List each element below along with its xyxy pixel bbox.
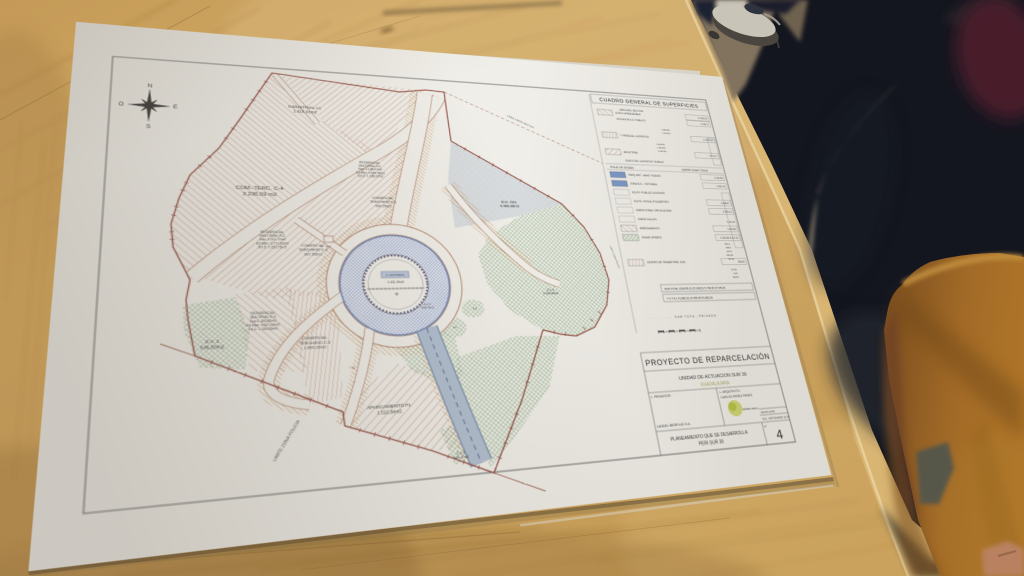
svg-text:3,25: 3,25 — [733, 272, 738, 275]
svg-text:1.214,51: 1.214,51 — [662, 132, 671, 135]
svg-text:904,1: 904,1 — [724, 242, 730, 245]
svg-text:CENTRO DE TRANSFORM. SUB: CENTRO DE TRANSFORM. SUB — [647, 261, 686, 264]
svg-text:1.819,91: 1.819,91 — [708, 155, 717, 158]
svg-text:4.181,86 6.117,00: 4.181,86 6.117,00 — [720, 236, 739, 239]
svg-text:E: E — [173, 105, 178, 110]
svg-text:INDUSTRIAL: INDUSTRIAL — [623, 151, 638, 155]
svg-text:C. ROTONDA: C. ROTONDA — [386, 273, 405, 277]
svg-text:Z.V.: Z.V. — [453, 326, 458, 329]
svg-text:96,19: 96,19 — [728, 257, 734, 260]
svg-text:247,0: 247,0 — [726, 250, 732, 253]
svg-text:N: N — [147, 84, 152, 89]
svg-text:5.748,35: 5.748,35 — [726, 220, 735, 223]
svg-text:17.832,02: 17.832,02 — [703, 139, 714, 142]
svg-text:1.522,84: 1.522,84 — [727, 228, 737, 231]
svg-text:1.431,19: 1.431,19 — [716, 185, 726, 188]
svg-text:S: S — [146, 125, 151, 130]
svg-text:APARCAMIENTO: APARCAMIENTO — [639, 227, 660, 230]
svg-text:188,3: 188,3 — [725, 246, 731, 249]
svg-text:88,35: 88,35 — [733, 276, 739, 279]
svg-text:150,45: 150,45 — [726, 254, 734, 257]
svg-text:COMERCIALTERCIARIO C-31.800,30: COMERCIALTERCIARIO C-31.800,30m2 — [299, 336, 331, 351]
svg-text:1.244,54: 1.244,54 — [658, 150, 667, 153]
svg-text:INDUSTRIAL I-11.819,91m2: INDUSTRIAL I-11.819,91m2 — [288, 104, 322, 114]
svg-text:Z.V.: Z.V. — [473, 307, 478, 310]
svg-text:1.431,19m2: 1.431,19m2 — [387, 280, 404, 284]
svg-text:12,40: 12,40 — [731, 268, 737, 271]
svg-text:1.488,37: 1.488,37 — [720, 202, 730, 205]
svg-text:4.181,86: 4.181,86 — [714, 177, 723, 180]
svg-text:ZONAS VERDES: ZONAS VERDES — [641, 236, 662, 239]
svg-text:VIARIO CALLES: VIARIO CALLES — [638, 218, 658, 221]
svg-text:1.246,71: 1.246,71 — [700, 123, 709, 126]
svg-text:VIARIO ZONAL CIRCULACION: VIARIO ZONAL CIRCULACION — [636, 209, 672, 213]
svg-text:150,00: 150,00 — [737, 260, 745, 263]
svg-text:4.984,41: 4.984,41 — [723, 210, 733, 213]
svg-text:O: O — [118, 102, 124, 107]
svg-text:RESIDENCIALMULTIFAM. R-3Sup:1.: RESIDENCIALMULTIFAM. R-3Sup:1.184,82m2Ed… — [246, 311, 280, 332]
